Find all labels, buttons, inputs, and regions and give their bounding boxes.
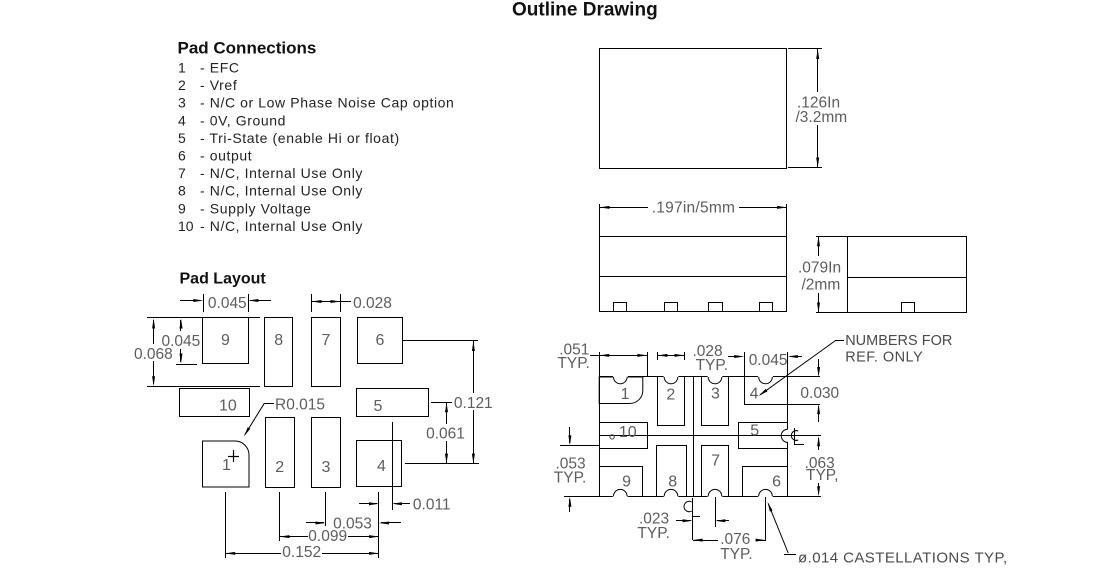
svg-text:TYP.: TYP. [637, 525, 669, 542]
svg-text:- N/C, Internal Use Only: - N/C, Internal Use Only [200, 183, 363, 199]
svg-text:- N/C, Internal Use Only: - N/C, Internal Use Only [200, 218, 363, 234]
svg-text:0.011: 0.011 [413, 497, 451, 514]
svg-text:- Vref: - Vref [200, 77, 237, 93]
svg-text:5: 5 [750, 423, 759, 440]
svg-text:6: 6 [772, 474, 781, 491]
svg-text:- output: - output [200, 148, 252, 164]
svg-text:1: 1 [621, 386, 630, 403]
svg-text:0.152: 0.152 [282, 544, 321, 561]
svg-text:0.030: 0.030 [800, 385, 839, 402]
svg-text:1: 1 [222, 457, 231, 474]
svg-text:.197in/5mm: .197in/5mm [652, 200, 735, 217]
svg-text:TYP.: TYP. [554, 470, 586, 487]
svg-text:4: 4 [178, 112, 186, 128]
svg-text:- Tri-State (enable Hi or floa: - Tri-State (enable Hi or float) [200, 130, 400, 146]
svg-text:TYP.: TYP. [720, 546, 752, 563]
svg-text:TYP.: TYP. [557, 355, 589, 372]
svg-text:3: 3 [178, 95, 186, 111]
svg-text:8: 8 [274, 332, 283, 349]
svg-text:3: 3 [322, 459, 331, 476]
svg-text:0.045: 0.045 [162, 333, 201, 350]
svg-text:9: 9 [622, 474, 631, 491]
svg-text:7: 7 [178, 165, 186, 181]
svg-text:0.045: 0.045 [749, 352, 788, 369]
svg-text:2: 2 [275, 459, 284, 476]
svg-text:10: 10 [619, 424, 637, 441]
svg-text:6: 6 [376, 332, 385, 349]
svg-text:- N/C, Internal Use Only: - N/C, Internal Use Only [200, 165, 363, 181]
svg-text:- 0V, Ground: - 0V, Ground [200, 112, 286, 128]
svg-text:8: 8 [178, 183, 186, 199]
svg-text:Outline Drawing: Outline Drawing [512, 0, 658, 21]
svg-text:/3.2mm: /3.2mm [796, 109, 848, 126]
svg-text:0.045: 0.045 [208, 295, 247, 312]
svg-text:5: 5 [374, 398, 383, 415]
svg-text:ø.014 CASTELLATIONS TYP,: ø.014 CASTELLATIONS TYP, [798, 550, 1008, 567]
svg-text:NUMBERS FOR: NUMBERS FOR [845, 333, 952, 349]
svg-text:TYP.: TYP. [696, 357, 728, 374]
svg-text:/2mm: /2mm [802, 277, 841, 294]
svg-text:6: 6 [178, 148, 186, 164]
svg-text:4: 4 [377, 458, 386, 475]
svg-text:4: 4 [750, 386, 759, 403]
svg-text:REF. ONLY: REF. ONLY [845, 349, 923, 365]
svg-text:0.061: 0.061 [426, 426, 465, 443]
svg-text:Pad Connections: Pad Connections [178, 39, 317, 58]
svg-text:7: 7 [322, 332, 331, 349]
svg-text:0.028: 0.028 [353, 295, 392, 312]
svg-text:5: 5 [178, 130, 186, 146]
svg-text:7: 7 [711, 453, 720, 470]
svg-text:- EFC: - EFC [200, 60, 240, 76]
svg-text:- N/C or Low Phase Noise Cap o: - N/C or Low Phase Noise Cap option [200, 95, 454, 111]
svg-text:10: 10 [219, 398, 237, 415]
svg-text:.079In: .079In [798, 260, 841, 277]
svg-text:8: 8 [668, 474, 677, 491]
svg-text:Pad Layout: Pad Layout [180, 271, 267, 288]
svg-text:0.099: 0.099 [308, 528, 347, 545]
svg-text:1: 1 [178, 60, 186, 76]
svg-text:2: 2 [178, 77, 186, 93]
svg-text:R0.015: R0.015 [275, 397, 325, 414]
svg-text:2: 2 [666, 387, 675, 404]
svg-text:TYP,: TYP, [806, 467, 838, 484]
svg-text:9: 9 [178, 200, 186, 216]
svg-text:3: 3 [711, 386, 720, 403]
svg-text:- Supply Voltage: - Supply Voltage [200, 200, 312, 216]
svg-text:9: 9 [221, 332, 230, 349]
svg-text:0.121: 0.121 [454, 395, 493, 412]
svg-text:10: 10 [178, 218, 194, 234]
